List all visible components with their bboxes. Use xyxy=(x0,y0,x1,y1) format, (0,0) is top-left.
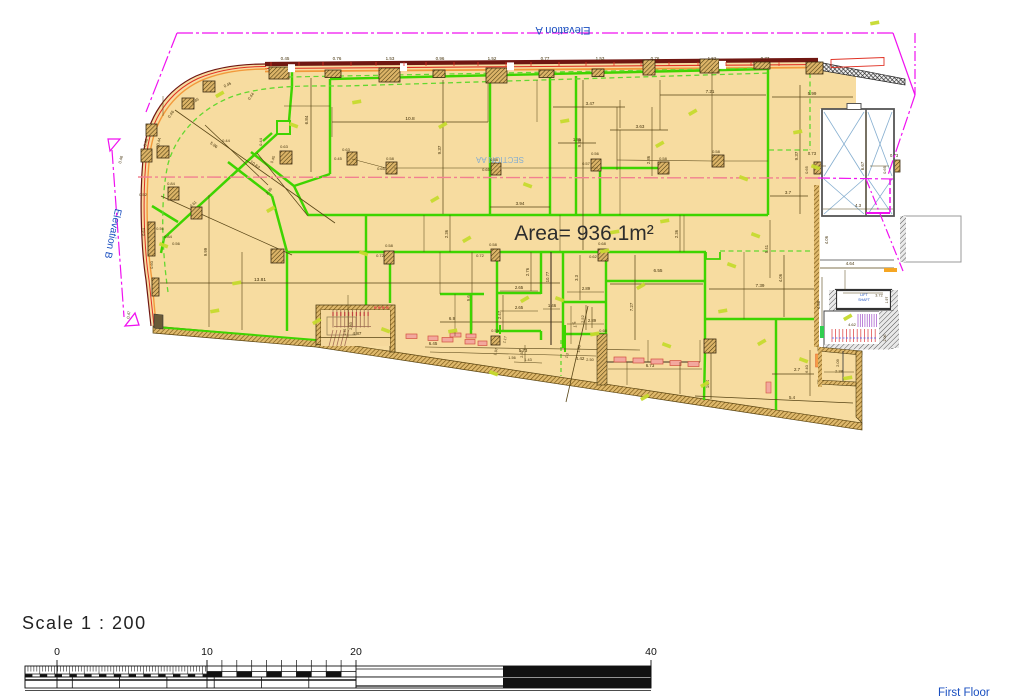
svg-text:2.65: 2.65 xyxy=(515,305,524,310)
svg-text:9.37: 9.37 xyxy=(794,151,799,160)
svg-text:2.7: 2.7 xyxy=(794,367,801,372)
svg-text:6.84: 6.84 xyxy=(304,115,309,124)
svg-text:0.72: 0.72 xyxy=(476,253,485,258)
svg-text:1.56: 1.56 xyxy=(508,356,515,360)
svg-text:2.89: 2.89 xyxy=(582,286,591,291)
svg-text:0.58: 0.58 xyxy=(659,156,668,161)
svg-text:0.76: 0.76 xyxy=(333,56,342,61)
svg-text:Scale 1 : 200: Scale 1 : 200 xyxy=(22,613,147,633)
svg-text:6.45: 6.45 xyxy=(429,341,438,346)
svg-text:SECTION AA: SECTION AA xyxy=(475,155,524,164)
svg-text:1.81: 1.81 xyxy=(573,137,582,142)
svg-text:2.36: 2.36 xyxy=(444,229,449,238)
svg-text:20: 20 xyxy=(350,646,362,658)
svg-text:1.43: 1.43 xyxy=(524,358,531,362)
svg-text:0.63: 0.63 xyxy=(280,144,289,149)
svg-text:0.65: 0.65 xyxy=(482,167,491,172)
svg-text:3.94: 3.94 xyxy=(516,201,525,206)
svg-text:0.45: 0.45 xyxy=(281,56,290,61)
svg-text:0.84: 0.84 xyxy=(164,234,173,239)
svg-text:SHAFT: SHAFT xyxy=(858,298,871,302)
svg-text:7.39: 7.39 xyxy=(756,283,765,288)
svg-text:2.50: 2.50 xyxy=(586,358,593,362)
svg-text:0.57: 0.57 xyxy=(582,161,591,166)
svg-text:0.65: 0.65 xyxy=(804,165,809,174)
svg-text:2.09: 2.09 xyxy=(835,358,840,367)
svg-text:2.38: 2.38 xyxy=(835,369,844,374)
svg-text:4.62: 4.62 xyxy=(848,322,857,327)
svg-text:3.63: 3.63 xyxy=(636,124,645,129)
svg-text:1.97: 1.97 xyxy=(885,297,889,304)
svg-text:0.96: 0.96 xyxy=(436,56,445,61)
svg-text:2.62: 2.62 xyxy=(520,350,524,357)
svg-text:0.65: 0.65 xyxy=(882,165,887,174)
svg-text:4.06: 4.06 xyxy=(824,235,829,244)
svg-text:0.58: 0.58 xyxy=(386,156,395,161)
svg-text:1.46: 1.46 xyxy=(548,303,557,308)
svg-text:0.77: 0.77 xyxy=(761,56,770,61)
svg-text:5.4: 5.4 xyxy=(789,395,796,400)
svg-text:0.77: 0.77 xyxy=(541,56,550,61)
svg-text:3.72: 3.72 xyxy=(875,294,882,298)
svg-text:3.7: 3.7 xyxy=(785,190,792,195)
svg-text:1.52: 1.52 xyxy=(708,56,717,61)
svg-text:2.65: 2.65 xyxy=(515,285,524,290)
svg-text:3.47: 3.47 xyxy=(586,101,595,106)
svg-text:0.52: 0.52 xyxy=(139,192,148,197)
svg-text:4.3: 4.3 xyxy=(855,203,862,208)
svg-text:2.86: 2.86 xyxy=(646,155,651,164)
svg-text:0.58: 0.58 xyxy=(490,157,499,162)
svg-text:2.76: 2.76 xyxy=(525,267,530,276)
svg-text:7.27: 7.27 xyxy=(629,302,634,311)
svg-text:1.53: 1.53 xyxy=(386,56,395,61)
svg-text:4.64: 4.64 xyxy=(846,261,855,266)
svg-text:0.56: 0.56 xyxy=(591,151,600,156)
svg-text:2.83: 2.83 xyxy=(349,322,353,329)
svg-text:1.53: 1.53 xyxy=(596,56,605,61)
svg-text:10.77: 10.77 xyxy=(545,271,550,282)
svg-text:0.56: 0.56 xyxy=(172,241,181,246)
svg-text:4.42: 4.42 xyxy=(576,356,585,361)
svg-text:0.76: 0.76 xyxy=(651,56,660,61)
svg-text:0.58: 0.58 xyxy=(385,243,394,248)
svg-text:10.8: 10.8 xyxy=(405,116,415,122)
svg-text:0.58: 0.58 xyxy=(489,242,498,247)
svg-text:6.9: 6.9 xyxy=(449,316,456,321)
svg-text:4.08: 4.08 xyxy=(816,300,821,309)
svg-text:10: 10 xyxy=(201,646,213,658)
svg-text:5.41: 5.41 xyxy=(764,244,769,253)
svg-text:6.40: 6.40 xyxy=(804,364,809,373)
svg-text:2.36: 2.36 xyxy=(674,229,679,238)
svg-text:9.37: 9.37 xyxy=(437,145,442,154)
svg-text:2.06: 2.06 xyxy=(883,335,887,342)
svg-text:0.60: 0.60 xyxy=(149,260,154,269)
svg-text:4.06: 4.06 xyxy=(778,273,783,282)
svg-text:7.21: 7.21 xyxy=(706,89,715,94)
svg-text:Area= 936.1m²: Area= 936.1m² xyxy=(514,222,654,245)
svg-text:LIFT: LIFT xyxy=(860,293,868,297)
svg-text:6.55: 6.55 xyxy=(654,268,663,273)
svg-text:0.44: 0.44 xyxy=(258,137,263,146)
svg-text:2.47: 2.47 xyxy=(497,310,502,319)
svg-text:Elevation A: Elevation A xyxy=(535,24,591,36)
svg-text:9.99: 9.99 xyxy=(203,247,208,256)
svg-text:5.99: 5.99 xyxy=(808,91,817,96)
svg-text:0.62: 0.62 xyxy=(589,254,598,259)
svg-text:0.68: 0.68 xyxy=(599,329,606,333)
svg-text:13.81: 13.81 xyxy=(254,277,266,283)
svg-text:0.84: 0.84 xyxy=(167,181,176,186)
svg-text:0.65: 0.65 xyxy=(377,166,386,171)
svg-text:0.73: 0.73 xyxy=(808,151,817,156)
svg-text:0.72: 0.72 xyxy=(376,253,385,258)
svg-text:6.67: 6.67 xyxy=(860,161,865,170)
svg-text:0.45: 0.45 xyxy=(334,156,343,161)
svg-text:4.87: 4.87 xyxy=(353,331,362,336)
svg-text:2.72: 2.72 xyxy=(343,329,347,336)
svg-text:0.46: 0.46 xyxy=(117,154,124,164)
svg-text:0.64: 0.64 xyxy=(141,227,146,236)
svg-text:0.56: 0.56 xyxy=(156,227,163,231)
svg-text:0: 0 xyxy=(54,646,60,658)
svg-text:0.58: 0.58 xyxy=(712,149,721,154)
svg-text:0.63: 0.63 xyxy=(342,147,351,152)
svg-text:0.58: 0.58 xyxy=(491,329,498,333)
svg-text:First Floor: First Floor xyxy=(938,687,990,699)
svg-text:0.44: 0.44 xyxy=(222,138,231,143)
svg-text:1.52: 1.52 xyxy=(488,56,497,61)
svg-text:3.3: 3.3 xyxy=(574,274,579,280)
svg-text:40: 40 xyxy=(645,646,657,658)
